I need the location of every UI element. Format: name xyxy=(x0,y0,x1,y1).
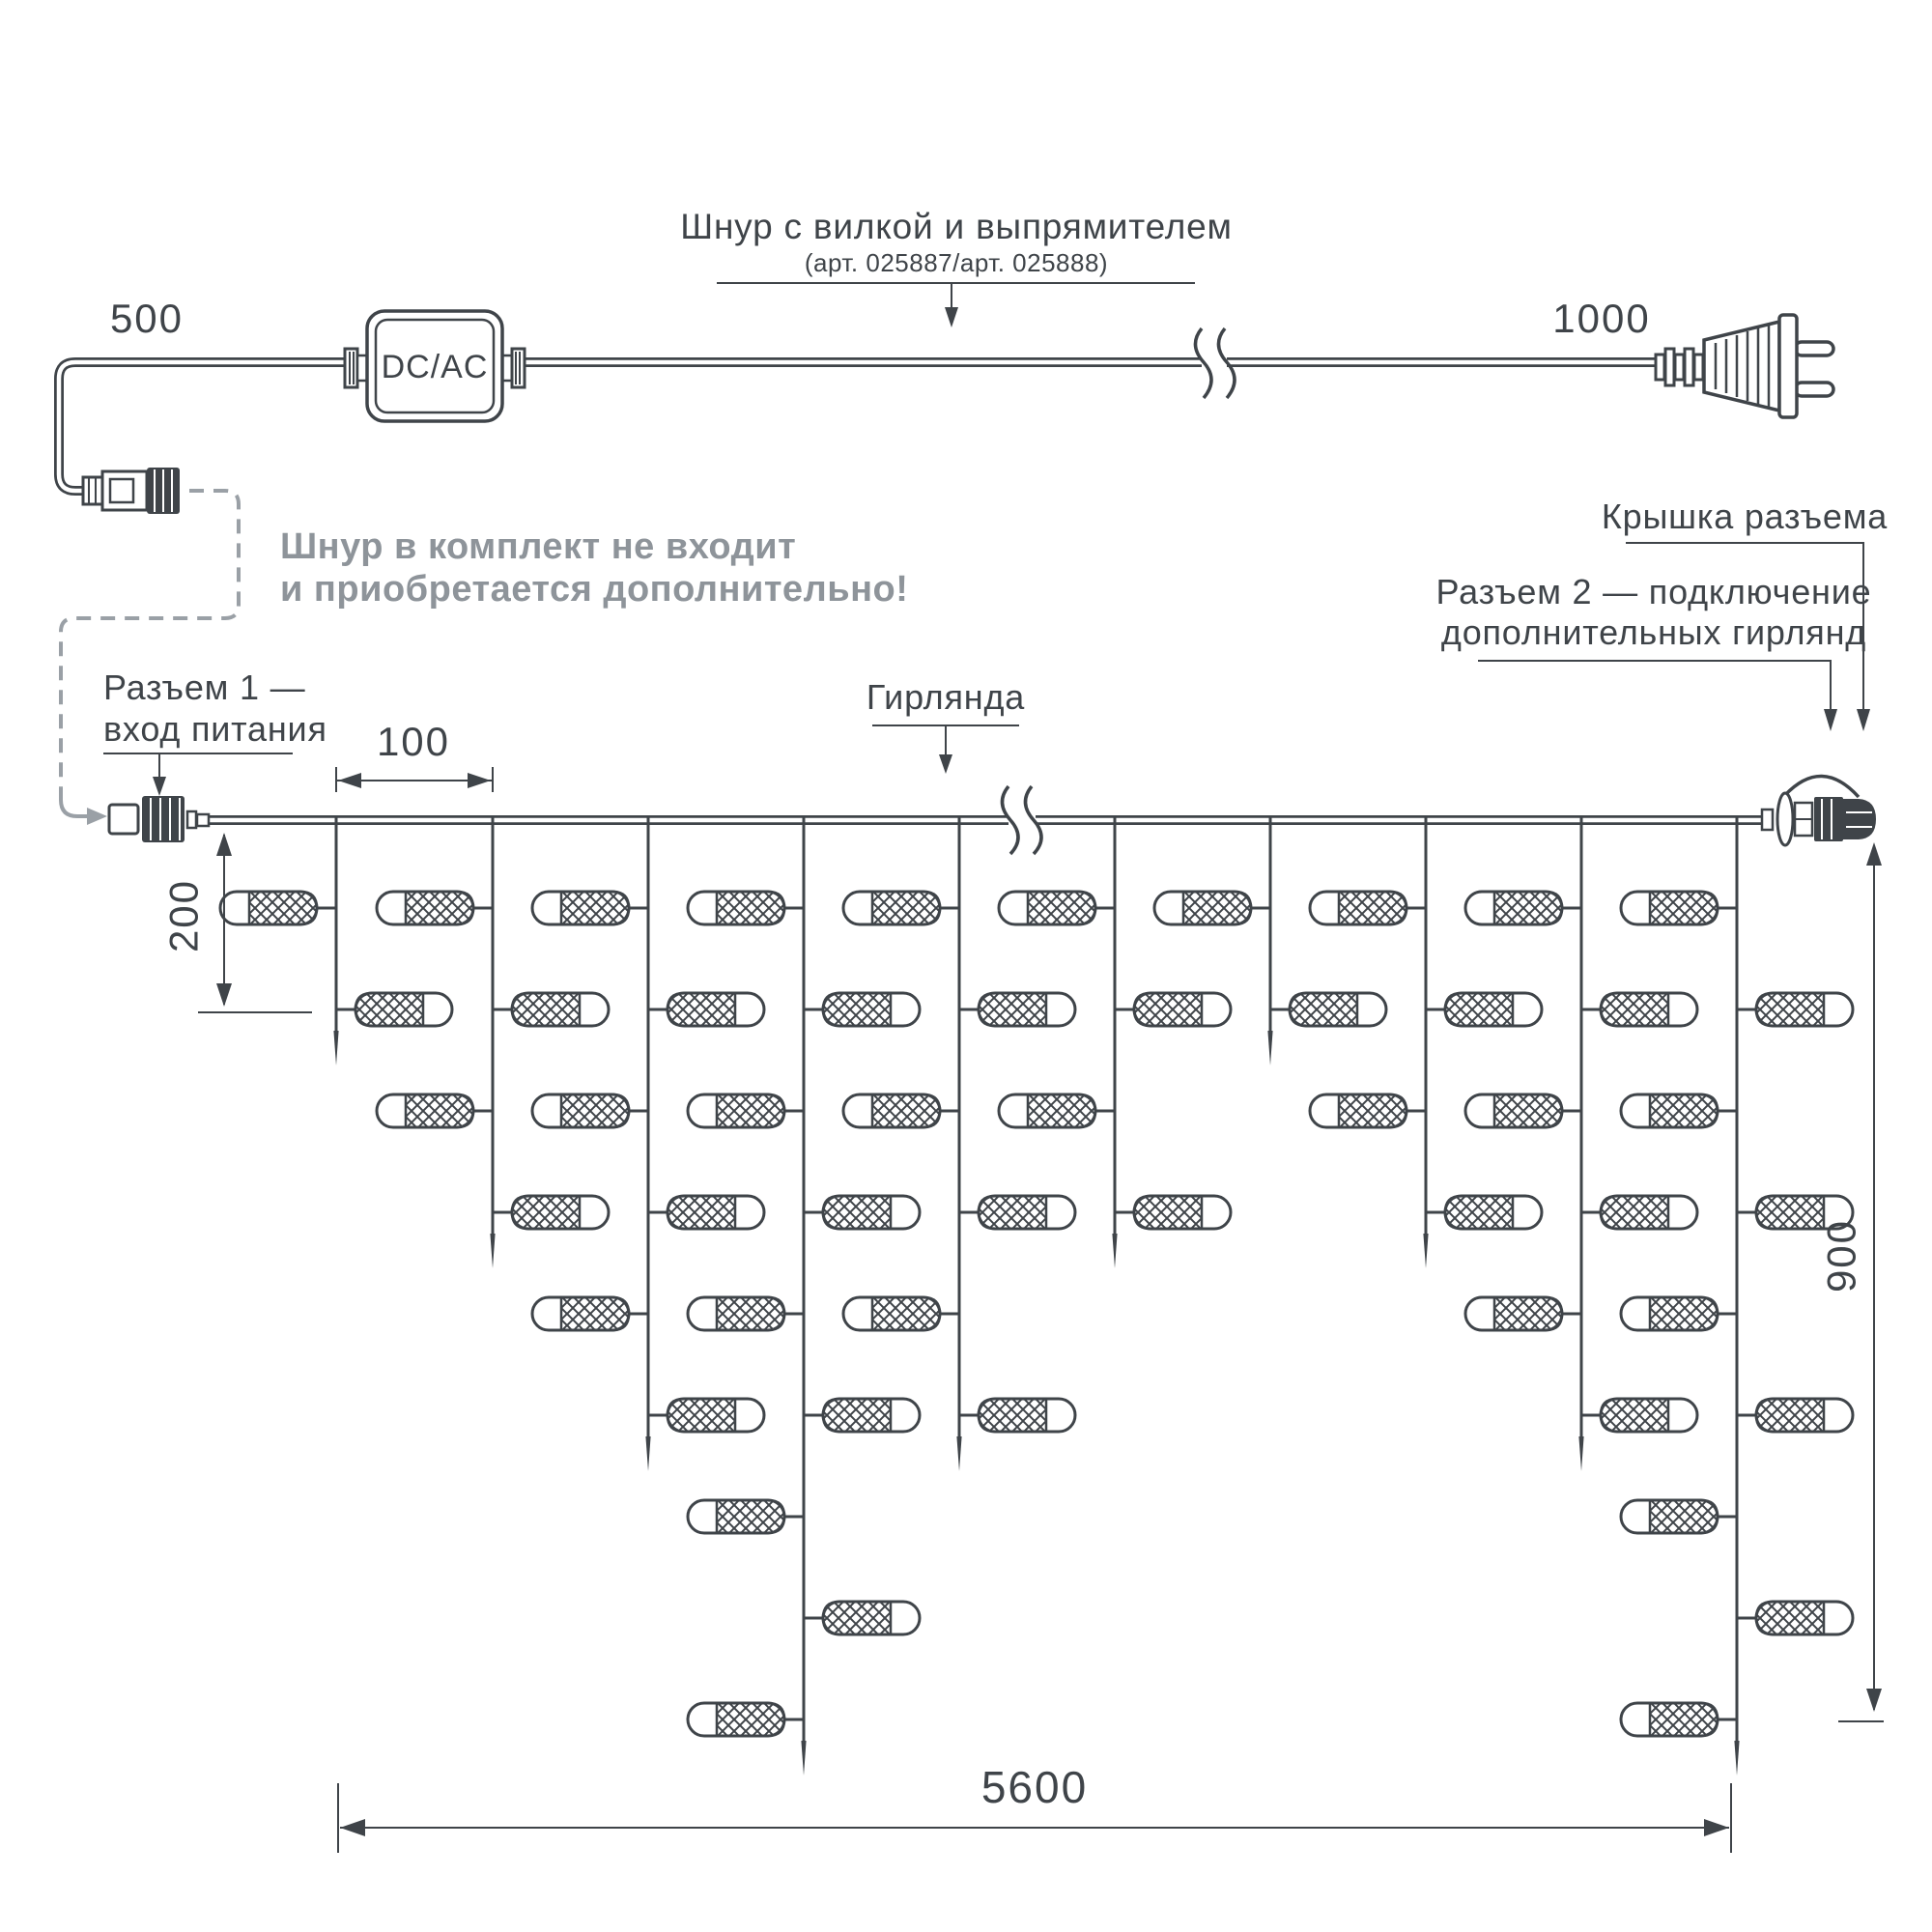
icicle-drop xyxy=(1621,817,1853,1776)
led-bulb xyxy=(804,993,920,1026)
led-bulb xyxy=(1621,892,1737,924)
plug-prong xyxy=(1795,383,1833,396)
connector-thread xyxy=(1814,797,1843,841)
dim-arrow-icon xyxy=(340,1819,365,1836)
cord-title: Шнур с вилкой и выпрямителем xyxy=(680,207,1233,246)
leader-arrow-icon xyxy=(939,754,952,774)
led-bulb xyxy=(688,1297,804,1330)
svg-text:Разъем 1 —: Разъем 1 — xyxy=(103,668,305,707)
svg-text:Крышка разъема: Крышка разъема xyxy=(1602,497,1888,536)
led-bulb xyxy=(1621,1297,1737,1330)
svg-text:дополнительных гирлянд: дополнительных гирлянд xyxy=(1441,612,1866,652)
led-bulb xyxy=(1581,1196,1697,1229)
dim-arrow-icon xyxy=(216,983,232,1007)
converter-label: DC/AC xyxy=(382,349,489,385)
led-bulb xyxy=(1621,1500,1737,1533)
led-bulb xyxy=(1465,892,1581,924)
led-bulb xyxy=(1737,993,1853,1026)
plug-prong xyxy=(1795,342,1833,355)
drop-tip xyxy=(1267,1031,1272,1065)
led-bulb xyxy=(220,892,336,924)
garland-drops xyxy=(220,817,1853,1776)
strap-ring xyxy=(1777,793,1793,845)
dim-total-width: 5600 xyxy=(338,1762,1731,1853)
dim-arrow-icon xyxy=(1866,842,1882,866)
led-bulb xyxy=(1310,1094,1426,1127)
svg-text:900: 900 xyxy=(1819,1219,1864,1293)
led-bulb xyxy=(532,1094,648,1127)
title-arrow-icon xyxy=(945,307,958,327)
led-bulb xyxy=(1737,1602,1853,1634)
dim-arrow-icon xyxy=(1704,1819,1729,1836)
led-bulb xyxy=(804,1602,920,1634)
led-bulb xyxy=(1465,1297,1581,1330)
dim-total-height: 900 xyxy=(1819,842,1884,1721)
dashed-connection-path xyxy=(61,491,239,825)
converter-coupler xyxy=(345,349,357,387)
svg-text:Разъем 2 — подключение: Разъем 2 — подключение xyxy=(1436,572,1872,611)
led-bulb xyxy=(804,1196,920,1229)
wiring-diagram: Шнур с вилкой и выпрямителем (арт. 02588… xyxy=(0,0,1932,1932)
connector2-label: Разъем 2 — подключение дополнительных ги… xyxy=(1436,572,1872,731)
dim-1000-label: 1000 xyxy=(1552,296,1650,341)
garland-input-connector xyxy=(109,796,209,842)
cord-output-connector xyxy=(83,468,180,514)
led-bulb xyxy=(1270,993,1386,1026)
drop-tip xyxy=(1112,1234,1117,1268)
led-bulb xyxy=(648,993,764,1026)
leader-arrow-icon xyxy=(1824,709,1837,731)
dim-arrow-icon xyxy=(1866,1689,1882,1712)
drop-tip xyxy=(1578,1436,1583,1471)
svg-text:Гирлянда: Гирлянда xyxy=(867,677,1025,717)
led-bulb xyxy=(804,1399,920,1432)
led-bulb xyxy=(377,892,493,924)
led-bulb xyxy=(1581,1399,1697,1432)
led-bulb xyxy=(648,1399,764,1432)
led-bulb xyxy=(843,1297,959,1330)
converter-coupler xyxy=(512,349,525,387)
not-included-note: Шнур в комплект не входит и приобретаетс… xyxy=(280,526,908,610)
led-bulb xyxy=(377,1094,493,1127)
drop-tip xyxy=(801,1741,806,1776)
led-bulb xyxy=(1426,1196,1542,1229)
connector1-label: Разъем 1 — вход питания xyxy=(103,668,327,796)
led-bulb xyxy=(648,1196,764,1229)
led-bulb xyxy=(1465,1094,1581,1127)
svg-text:вход питания: вход питания xyxy=(103,709,327,749)
led-bulb xyxy=(843,1094,959,1127)
svg-text:200: 200 xyxy=(161,879,207,952)
led-bulb xyxy=(688,1500,804,1533)
svg-text:5600: 5600 xyxy=(981,1762,1088,1812)
led-bulb xyxy=(493,993,609,1026)
drop-tip xyxy=(333,1031,338,1065)
led-bulb xyxy=(688,1094,804,1127)
mains-plug xyxy=(1656,315,1833,417)
drop-tip xyxy=(1423,1234,1428,1268)
drop-tip xyxy=(1734,1741,1739,1776)
plug-face xyxy=(1779,315,1797,417)
led-bulb xyxy=(999,1094,1115,1127)
led-bulb xyxy=(959,1399,1075,1432)
garland-output-connector xyxy=(1762,776,1876,845)
icicle-drop xyxy=(377,817,609,1268)
leader-arrow-icon xyxy=(153,777,166,796)
dim-arrow-icon xyxy=(468,773,491,788)
icicle-drop xyxy=(1310,817,1542,1268)
power-cord-cable xyxy=(59,328,1658,491)
led-bulb xyxy=(959,993,1075,1026)
led-bulb xyxy=(688,1703,804,1736)
led-bulb xyxy=(532,1297,648,1330)
led-bulb xyxy=(1426,993,1542,1026)
icicle-drop xyxy=(1154,817,1386,1065)
led-bulb xyxy=(1310,892,1426,924)
svg-text:100: 100 xyxy=(377,719,450,764)
dim-arrow-icon xyxy=(338,773,361,788)
led-bulb xyxy=(959,1196,1075,1229)
dim-arrow-icon xyxy=(216,833,232,856)
led-bulb xyxy=(532,892,648,924)
cord-article-numbers: (арт. 025887/арт. 025888) xyxy=(805,248,1108,277)
dc-ac-converter: DC/AC xyxy=(345,311,525,421)
drop-tip xyxy=(956,1436,961,1471)
led-bulb xyxy=(843,892,959,924)
garland-wire xyxy=(209,786,1762,854)
icicle-drop xyxy=(220,817,452,1065)
led-bulb xyxy=(999,892,1115,924)
led-bulb xyxy=(1621,1703,1737,1736)
led-bulb xyxy=(1115,1196,1231,1229)
garland-label: Гирлянда xyxy=(867,677,1025,774)
note-line-2: и приобретается дополнительно! xyxy=(280,569,908,610)
led-bulb xyxy=(688,892,804,924)
connector-thread xyxy=(142,796,185,842)
led-bulb xyxy=(1737,1399,1853,1432)
led-bulb xyxy=(1154,892,1270,924)
dim-drop-spacing: 100 xyxy=(336,719,493,792)
led-bulb xyxy=(493,1196,609,1229)
led-bulb xyxy=(336,993,452,1026)
led-bulb xyxy=(1115,993,1231,1026)
drop-tip xyxy=(490,1234,495,1268)
gray-arrow-icon xyxy=(87,808,107,825)
led-bulb xyxy=(1621,1094,1737,1127)
product-scheme-page: Шнур с вилкой и выпрямителем (арт. 02588… xyxy=(0,0,1932,1932)
cord-title-block: Шнур с вилкой и выпрямителем (арт. 02588… xyxy=(680,207,1233,327)
dim-500-label: 500 xyxy=(110,296,184,341)
note-line-1: Шнур в комплект не входит xyxy=(280,526,796,567)
drop-tip xyxy=(645,1436,650,1471)
led-bulb xyxy=(1581,993,1697,1026)
connector-cap xyxy=(1843,799,1876,839)
cap-strap xyxy=(1785,776,1859,797)
leader-arrow-icon xyxy=(1857,709,1870,731)
